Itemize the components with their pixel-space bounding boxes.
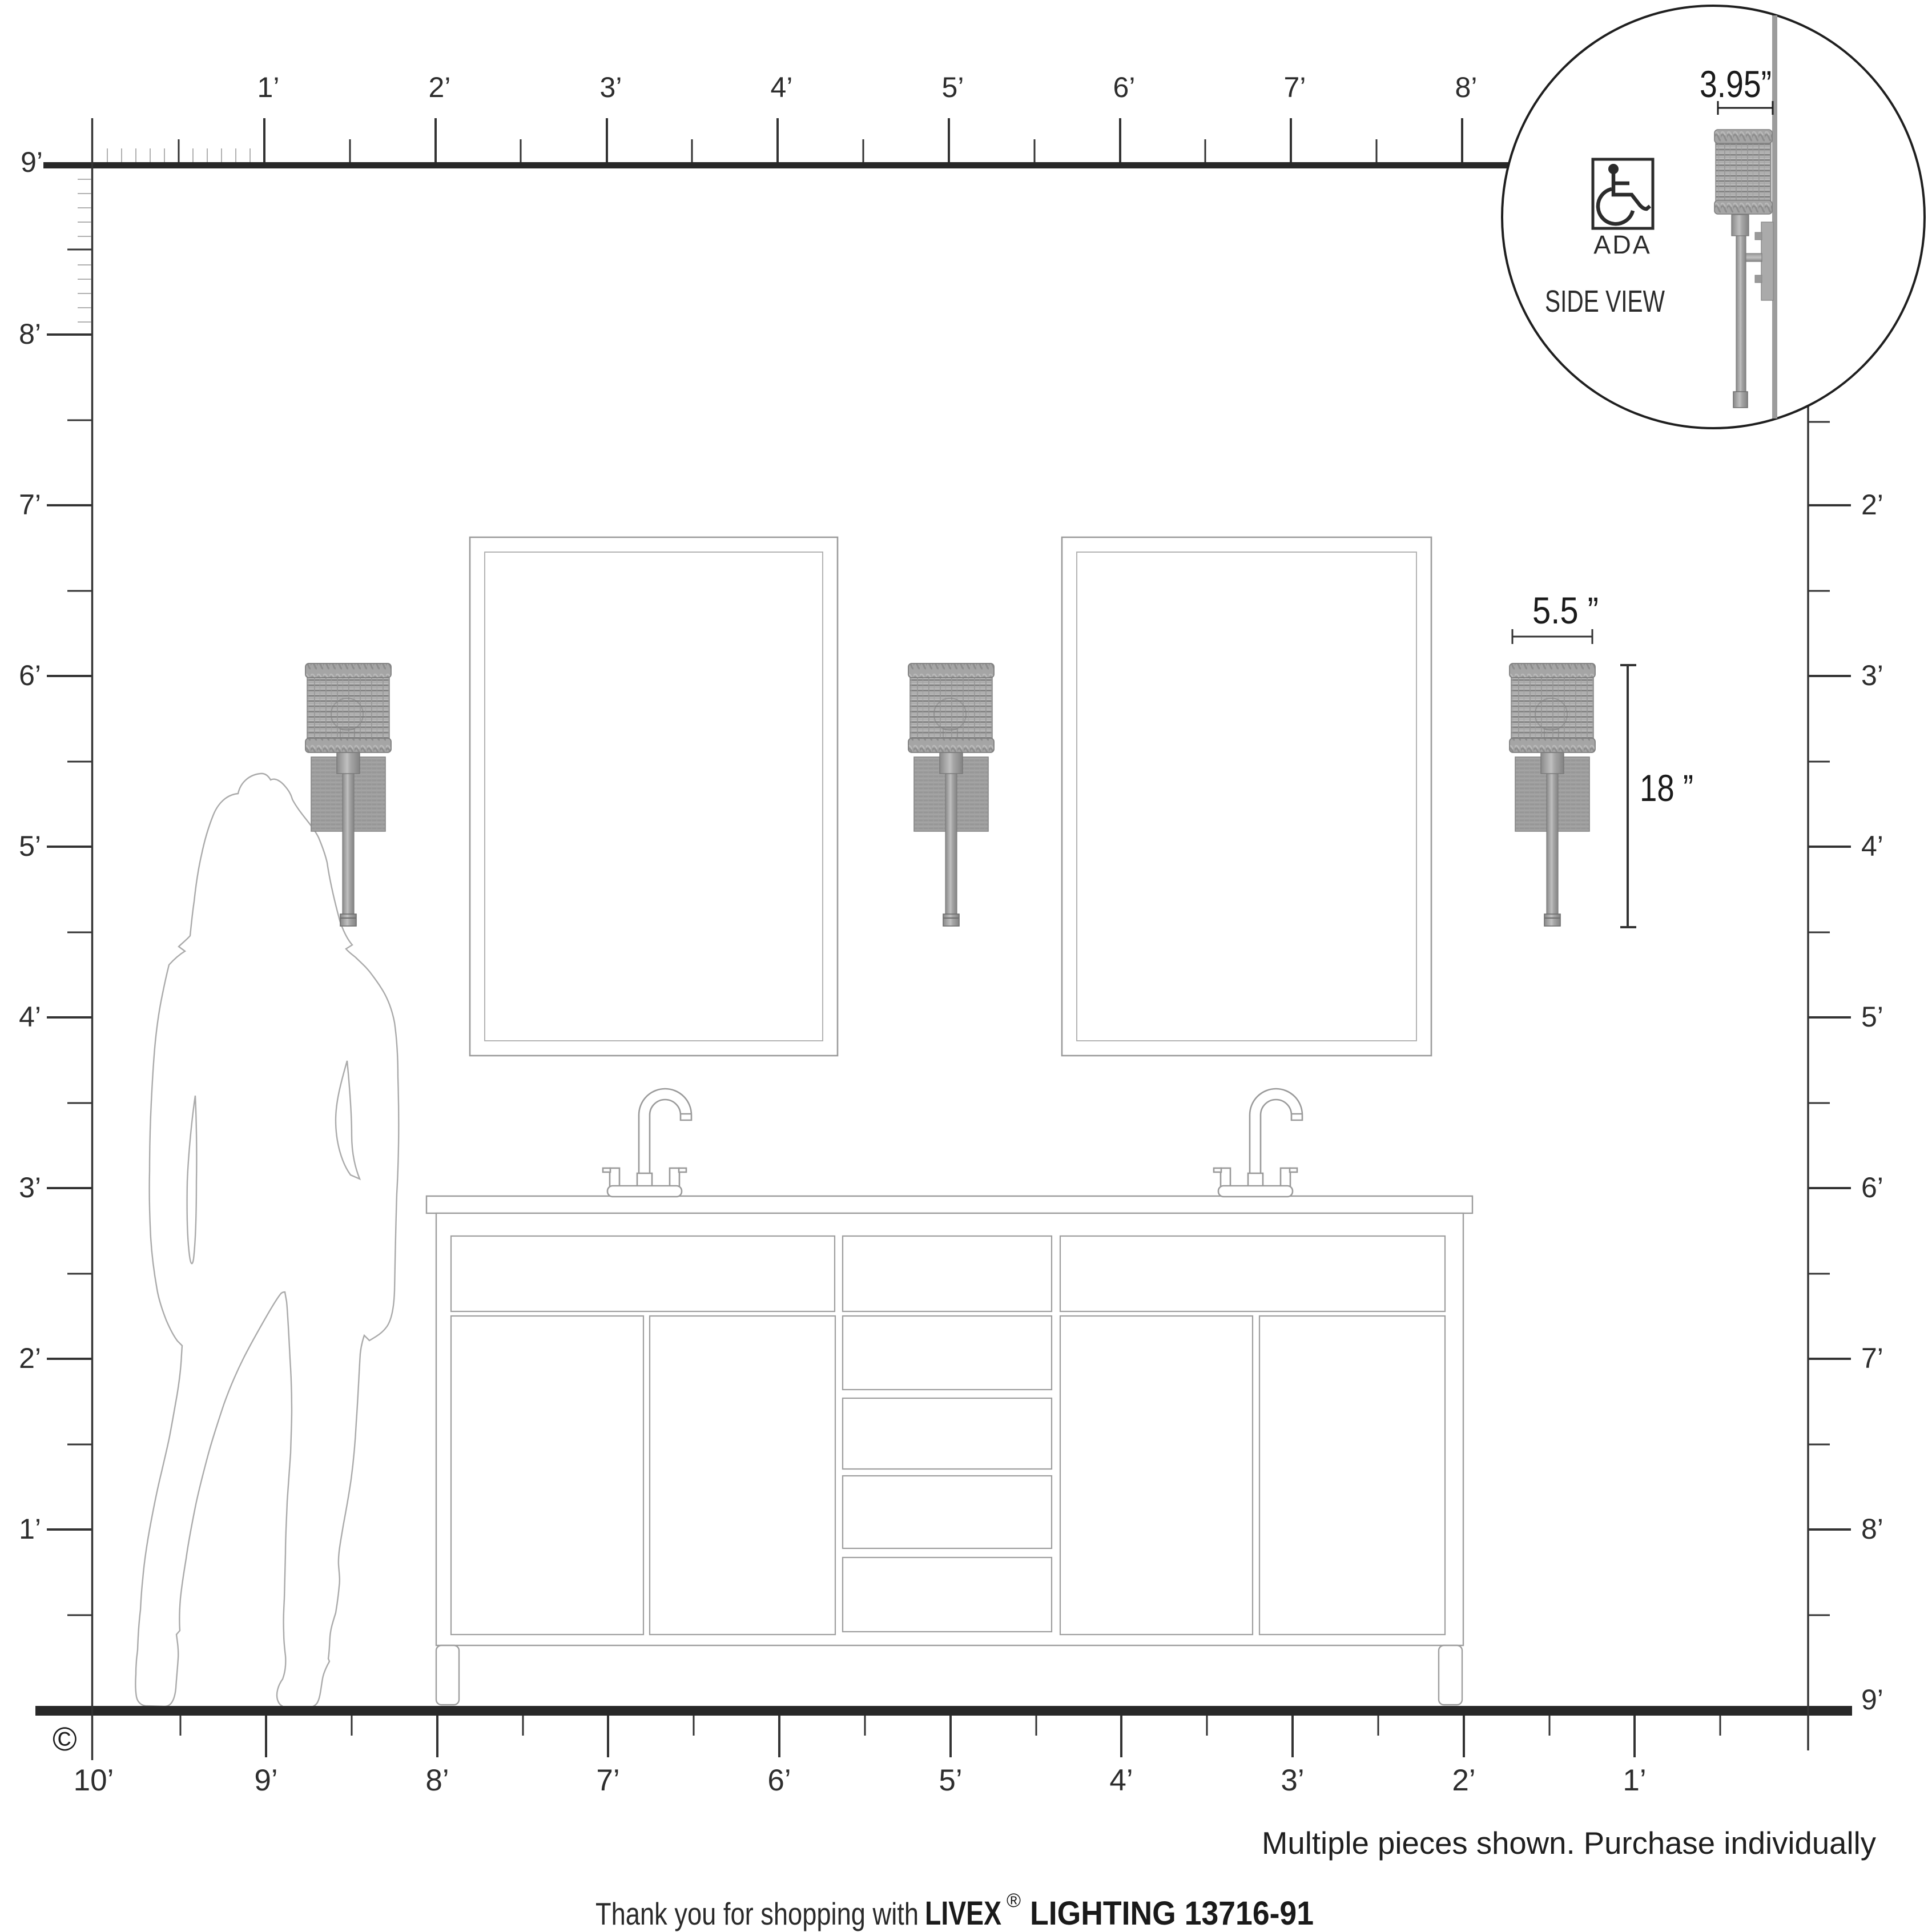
- svg-text:8’: 8’: [425, 1764, 449, 1797]
- svg-text:6’: 6’: [19, 659, 41, 691]
- svg-text:9’: 9’: [254, 1764, 277, 1797]
- svg-text:5’: 5’: [939, 1764, 962, 1797]
- svg-text:SIDE VIEW: SIDE VIEW: [1545, 284, 1665, 319]
- svg-text:LIGHTING 13716-91: LIGHTING 13716-91: [1030, 1895, 1314, 1932]
- svg-text:7’: 7’: [1284, 71, 1306, 103]
- svg-text:2’: 2’: [429, 71, 451, 103]
- svg-text:Thank you for shopping with: Thank you for shopping with: [595, 1896, 919, 1931]
- svg-text:5.5 ”: 5.5 ”: [1532, 589, 1599, 631]
- svg-text:7’: 7’: [1861, 1342, 1883, 1374]
- svg-text:5’: 5’: [1861, 1001, 1883, 1033]
- svg-text:3.95”: 3.95”: [1700, 63, 1772, 105]
- svg-text:9’: 9’: [1861, 1684, 1883, 1716]
- svg-text:3’: 3’: [1281, 1764, 1304, 1797]
- svg-text:10’: 10’: [74, 1764, 114, 1797]
- svg-text:4’: 4’: [771, 71, 793, 103]
- svg-text:3’: 3’: [1861, 659, 1883, 691]
- svg-text:4’: 4’: [1109, 1764, 1133, 1797]
- svg-text:ADA: ADA: [1593, 230, 1652, 259]
- svg-text:©: ©: [53, 1721, 77, 1758]
- svg-text:LIVEX: LIVEX: [925, 1895, 1001, 1932]
- svg-text:6’: 6’: [1113, 71, 1136, 103]
- svg-text:2’: 2’: [19, 1342, 41, 1374]
- svg-text:8’: 8’: [1455, 71, 1478, 103]
- svg-text:4’: 4’: [19, 1001, 41, 1033]
- svg-text:3’: 3’: [600, 71, 622, 103]
- svg-text:7’: 7’: [596, 1764, 619, 1797]
- svg-text:1’: 1’: [257, 71, 280, 103]
- svg-text:18 ”: 18 ”: [1640, 767, 1693, 809]
- svg-text:3’: 3’: [19, 1172, 41, 1204]
- svg-text:1’: 1’: [1623, 1764, 1646, 1797]
- svg-text:1’: 1’: [19, 1513, 41, 1545]
- svg-text:8’: 8’: [1861, 1513, 1883, 1545]
- svg-text:9’: 9’: [21, 146, 43, 178]
- svg-text:®: ®: [1007, 1890, 1021, 1911]
- svg-text:7’: 7’: [19, 489, 41, 521]
- svg-text:6’: 6’: [1861, 1172, 1883, 1204]
- svg-text:6’: 6’: [767, 1764, 791, 1797]
- svg-text:4’: 4’: [1861, 830, 1883, 862]
- svg-text:5’: 5’: [942, 71, 964, 103]
- svg-text:2’: 2’: [1861, 489, 1883, 521]
- svg-text:Multiple pieces shown. Purcha: Multiple pieces shown. Purchase individu…: [1262, 1825, 1876, 1861]
- svg-text:8’: 8’: [19, 318, 41, 350]
- svg-text:5’: 5’: [19, 830, 41, 862]
- svg-text:2’: 2’: [1452, 1764, 1475, 1797]
